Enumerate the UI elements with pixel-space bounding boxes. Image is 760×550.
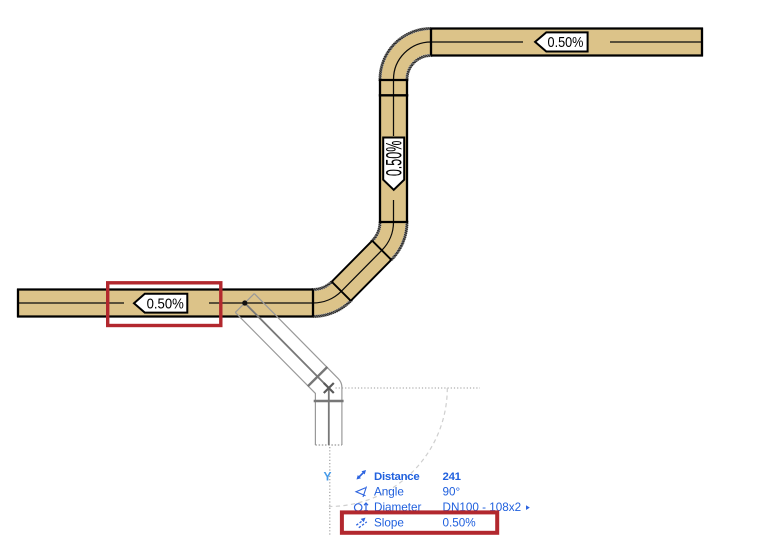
svg-text:Distance: Distance <box>374 471 419 483</box>
svg-text:0.50%: 0.50% <box>443 517 476 530</box>
svg-text:0.50%: 0.50% <box>381 141 406 177</box>
svg-text:90°: 90° <box>443 485 461 498</box>
svg-text:Slope: Slope <box>374 517 404 530</box>
svg-text:241: 241 <box>443 471 462 483</box>
svg-text:Angle: Angle <box>374 485 404 498</box>
svg-text:0.50%: 0.50% <box>548 35 584 51</box>
svg-text:0.50%: 0.50% <box>147 296 184 312</box>
svg-text:Y: Y <box>324 470 332 484</box>
